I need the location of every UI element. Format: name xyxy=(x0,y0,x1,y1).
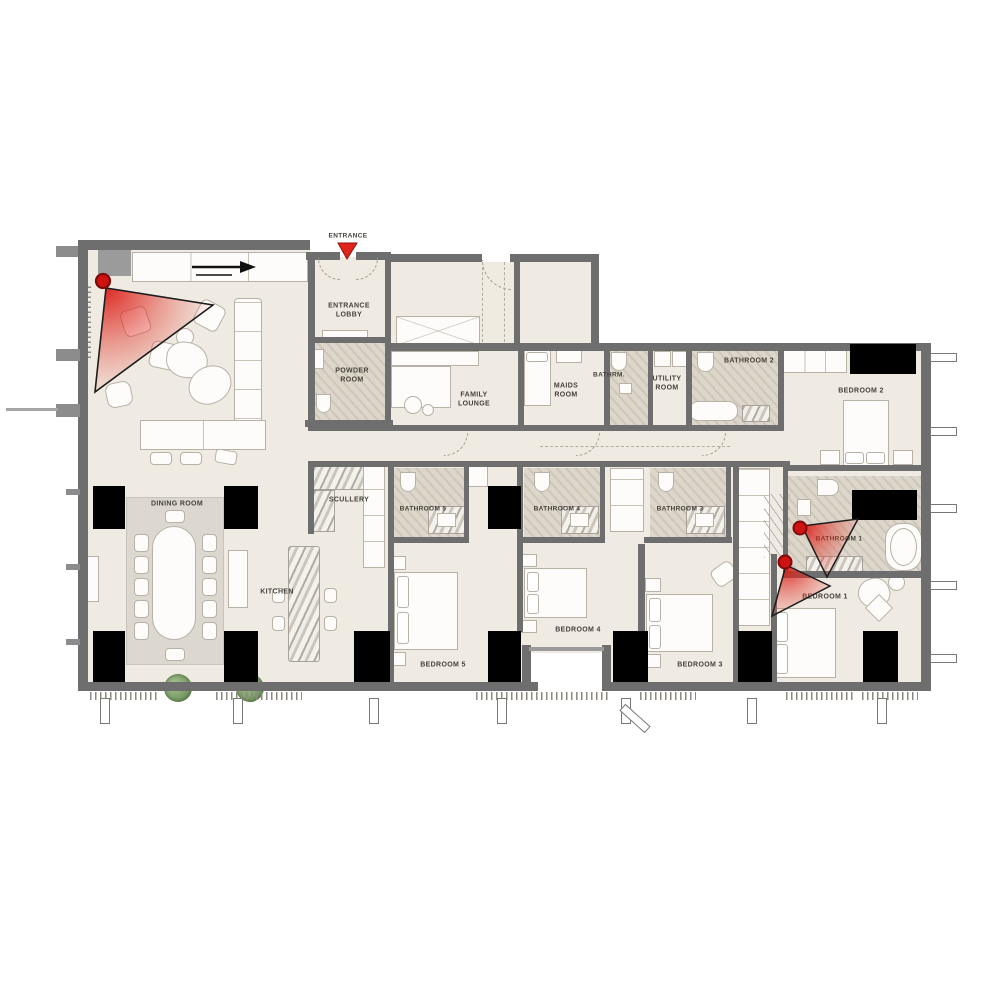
pouf xyxy=(150,452,172,465)
dashed-guide xyxy=(482,262,483,342)
nightstand xyxy=(521,620,537,633)
toilet xyxy=(611,352,627,371)
chair xyxy=(134,578,149,596)
window-ticks xyxy=(640,692,696,700)
sink xyxy=(619,383,632,394)
room-label-bedroom-4: BEDROOM 4 xyxy=(555,625,601,634)
column xyxy=(863,631,898,682)
sink xyxy=(695,513,714,527)
chair xyxy=(134,622,149,640)
dashed-guide xyxy=(504,262,505,342)
wall xyxy=(783,471,788,577)
wall xyxy=(921,343,931,691)
room-label-bathroom-5: BATHROOM 5 xyxy=(400,506,447,515)
kitchen-island xyxy=(288,546,320,662)
wall xyxy=(726,466,731,540)
column xyxy=(613,631,648,682)
mullion-post xyxy=(100,698,110,724)
pillow xyxy=(866,452,885,464)
chair xyxy=(202,534,217,552)
column xyxy=(93,631,125,682)
column xyxy=(488,486,521,529)
pillow xyxy=(526,352,548,362)
room-label-bedroom-5: BEDROOM 5 xyxy=(420,660,466,669)
toilet xyxy=(658,472,674,492)
room-label-utility-room: UTILITY ROOM xyxy=(653,375,682,394)
chair xyxy=(134,556,149,574)
terrace-notch xyxy=(530,653,606,691)
dining-table xyxy=(152,526,196,640)
wall xyxy=(385,343,928,351)
wall-stub xyxy=(56,246,78,257)
wall xyxy=(464,466,469,540)
wall xyxy=(686,345,692,431)
room-label-powder-room: POWDER ROOM xyxy=(335,367,369,386)
wall xyxy=(78,240,88,691)
stool xyxy=(272,616,285,631)
wall xyxy=(521,537,605,543)
window-ticks xyxy=(476,692,608,700)
toilet xyxy=(534,472,550,492)
sink xyxy=(797,499,811,516)
chair xyxy=(202,600,217,618)
mullion-post xyxy=(233,698,243,724)
sideboard xyxy=(140,420,266,450)
pillow xyxy=(397,576,409,608)
vanity xyxy=(806,556,863,572)
floor-plan: ENTRANCE ENTRANCE LOBBY POWDER ROOM FAMI… xyxy=(0,0,1000,1000)
window-ticks xyxy=(862,692,918,700)
wall xyxy=(644,537,732,543)
toilet xyxy=(400,472,416,492)
wall-tick xyxy=(66,564,80,570)
wall xyxy=(783,571,923,578)
daybed xyxy=(396,316,480,346)
mullion-post xyxy=(930,504,957,513)
pouf xyxy=(180,452,202,465)
room-label-maids-room: MAIDS ROOM xyxy=(554,382,578,401)
wall-tick xyxy=(66,489,80,495)
wall-stub xyxy=(56,349,80,361)
room-label-dining-room: DINING ROOM xyxy=(151,499,203,508)
wall xyxy=(308,461,790,467)
room-label-bathroom-1: BATHROOM 1 xyxy=(816,536,863,545)
mullion-post xyxy=(369,698,379,724)
pillow xyxy=(776,644,788,674)
room-label-bathroom-3: BATHROOM 3 xyxy=(657,506,704,515)
chair xyxy=(134,534,149,552)
wall xyxy=(308,425,784,431)
wall xyxy=(783,465,923,471)
bathtub xyxy=(689,401,738,421)
column xyxy=(93,486,125,529)
pillow xyxy=(397,612,409,644)
wall xyxy=(600,466,605,540)
kitchen-cabinet xyxy=(228,550,248,608)
wardrobe xyxy=(783,349,847,373)
wall xyxy=(602,682,931,691)
pillow xyxy=(776,612,788,642)
room-label-bathroom-2: BATHROOM 2 xyxy=(724,356,774,365)
wall-stub xyxy=(6,408,58,411)
column xyxy=(738,631,772,682)
chair xyxy=(165,648,185,661)
room-label-entrance-lobby: ENTRANCE LOBBY xyxy=(328,302,370,321)
nightstand xyxy=(645,578,661,592)
mullion-post xyxy=(930,353,957,362)
wall xyxy=(778,345,784,431)
room-label-bedroom-1: BEDROOM 1 xyxy=(802,592,848,601)
pillow xyxy=(527,572,539,592)
stool xyxy=(324,616,337,631)
lounge-sofa-back xyxy=(391,351,479,366)
wall xyxy=(510,254,598,262)
wall xyxy=(78,682,538,691)
room-label-bedroom-2: BEDROOM 2 xyxy=(838,386,884,395)
wall xyxy=(591,254,599,350)
mullion-post xyxy=(930,427,957,436)
chair xyxy=(202,556,217,574)
chair xyxy=(134,600,149,618)
wall xyxy=(385,345,391,431)
room-label-bedroom-3: BEDROOM 3 xyxy=(677,660,723,669)
vanity xyxy=(742,405,770,422)
wall xyxy=(308,337,389,343)
living-wall-cabinet xyxy=(132,252,308,282)
pillow xyxy=(527,594,539,614)
scullery-counter xyxy=(313,466,365,490)
wall xyxy=(518,345,524,431)
mullion-post xyxy=(497,698,507,724)
column xyxy=(488,631,521,682)
wall xyxy=(638,544,645,632)
wall xyxy=(98,250,131,276)
nightstand xyxy=(893,450,913,465)
pillow xyxy=(845,452,864,464)
chair xyxy=(202,578,217,596)
room-label-kitchen: KITCHEN xyxy=(260,587,294,596)
toilet xyxy=(316,394,331,413)
tall-cabinet-column xyxy=(363,466,385,568)
wall xyxy=(84,240,310,250)
mullion-post xyxy=(930,654,957,663)
window-ticks xyxy=(786,692,856,700)
room-label-bathrm: BATHRM. xyxy=(593,372,625,381)
bathtub-inner xyxy=(890,528,917,566)
column xyxy=(354,631,390,682)
column xyxy=(224,486,258,529)
wall xyxy=(308,461,314,534)
wall xyxy=(514,256,520,348)
chair xyxy=(165,510,185,523)
dresser xyxy=(556,349,582,363)
closet-column xyxy=(610,468,644,532)
washer xyxy=(654,351,671,367)
toilet xyxy=(817,479,839,496)
nightstand xyxy=(820,450,840,465)
wall xyxy=(604,345,610,431)
pillow xyxy=(649,598,661,622)
column xyxy=(850,344,916,374)
mullion-post xyxy=(930,581,957,590)
wall xyxy=(388,537,469,543)
round-table xyxy=(404,396,422,414)
wall xyxy=(602,645,611,690)
column xyxy=(224,631,258,682)
room-label-entrance: ENTRANCE xyxy=(329,233,368,242)
round-table xyxy=(422,404,434,416)
mullion-post xyxy=(747,698,757,724)
room-label-family-lounge: FAMILY LOUNGE xyxy=(458,391,490,410)
nightstand xyxy=(521,554,537,567)
stool xyxy=(324,588,337,603)
wall xyxy=(388,254,482,262)
column xyxy=(852,490,917,520)
wall xyxy=(522,645,531,690)
window-wall xyxy=(529,647,604,651)
window-ticks xyxy=(216,692,302,700)
toilet xyxy=(697,352,714,372)
mullion-post xyxy=(877,698,887,724)
room-label-scullery: SCULLERY xyxy=(329,495,369,504)
sink xyxy=(570,513,589,527)
wall xyxy=(385,252,391,347)
chair xyxy=(202,622,217,640)
dashed-guide xyxy=(540,446,730,447)
wall-stub xyxy=(56,404,80,417)
wall-tick xyxy=(66,639,80,645)
room-label-bathroom-4: BATHROOM 4 xyxy=(534,506,581,515)
sink xyxy=(437,513,456,527)
pillow xyxy=(649,625,661,649)
